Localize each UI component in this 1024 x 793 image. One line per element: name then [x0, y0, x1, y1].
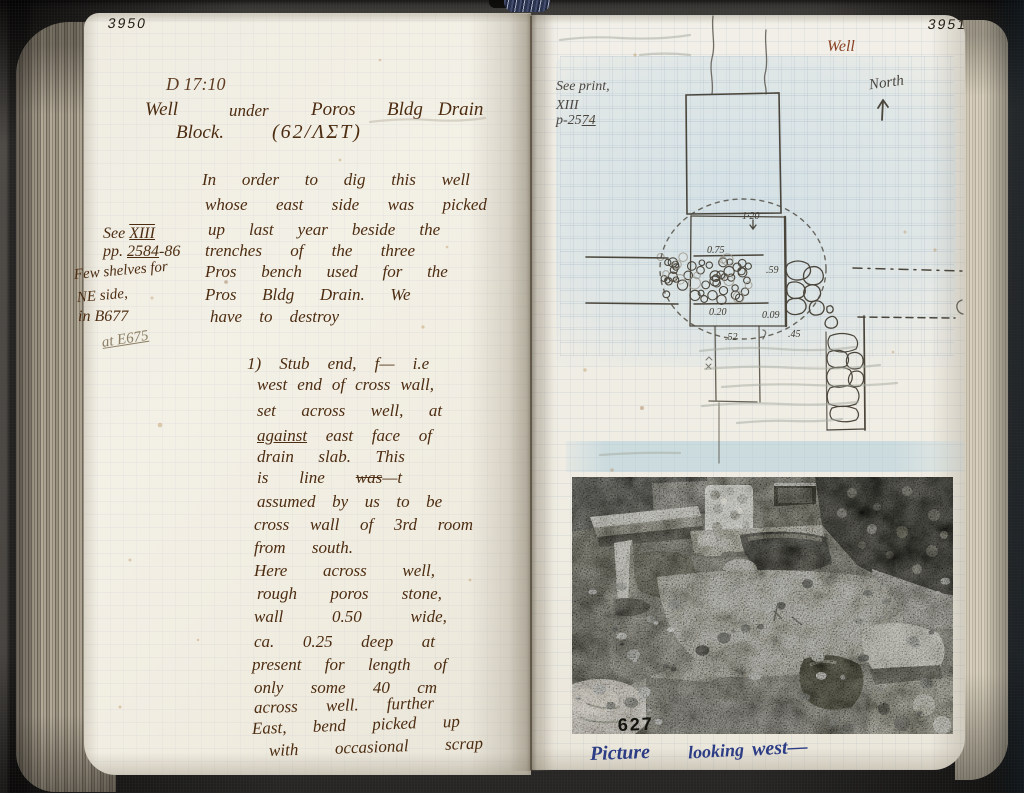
svg-text:.52: .52 [725, 332, 738, 343]
svg-text:0.20: 0.20 [709, 307, 727, 318]
svg-text:0.75: 0.75 [707, 245, 725, 256]
svg-text:1·20: 1·20 [742, 211, 760, 222]
svg-text:627: 627 [617, 714, 654, 734]
svg-text:.59: .59 [766, 265, 779, 276]
svg-text:.45: .45 [788, 329, 801, 340]
svg-text:0.09: 0.09 [762, 310, 780, 321]
